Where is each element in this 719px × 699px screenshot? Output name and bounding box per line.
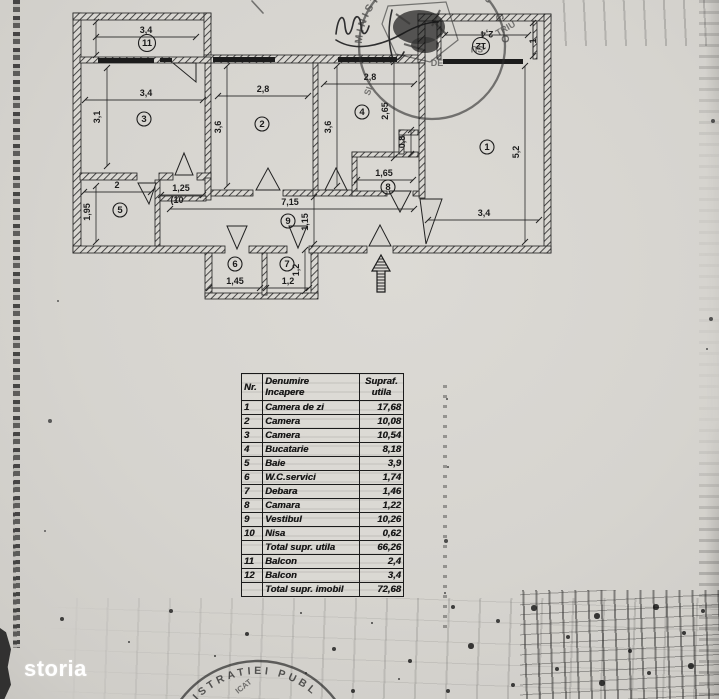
wall xyxy=(155,180,160,246)
wall xyxy=(313,63,318,193)
wall xyxy=(311,253,318,296)
wall xyxy=(413,191,419,196)
svg-text:8: 8 xyxy=(385,182,390,193)
cell-room-name: Camara xyxy=(263,499,360,513)
wall xyxy=(73,13,81,253)
door-swing-icon xyxy=(420,199,442,244)
dim-label: 1,65 xyxy=(375,168,393,178)
room-number: 6 xyxy=(228,257,242,271)
table-row: 8Camara1,22 xyxy=(242,499,404,513)
wall xyxy=(419,63,425,198)
dim-label: 3,1 xyxy=(92,111,102,124)
cell-area-value: 10,26 xyxy=(359,513,403,527)
dim-label: (10 xyxy=(170,195,183,205)
cell-room-name: Camera xyxy=(263,429,360,443)
wall xyxy=(249,246,287,253)
wall xyxy=(205,63,211,178)
table-row: 12Balcon3,4 xyxy=(242,569,404,583)
door-swing-icon xyxy=(138,183,156,204)
cell-nr xyxy=(242,583,263,597)
dim-label: 1,15 xyxy=(300,213,310,231)
dim-label: 3,4 xyxy=(140,25,153,35)
dim-label: 1,2 xyxy=(291,264,301,277)
wall xyxy=(211,190,253,196)
door-swing-icon xyxy=(173,63,196,82)
svg-text:1: 1 xyxy=(484,142,490,153)
svg-text:6: 6 xyxy=(232,259,237,270)
dim-label: 1,95 xyxy=(82,203,92,221)
table-row: 4Bucatarie8,18 xyxy=(242,443,404,457)
door-swing-icon xyxy=(175,153,193,175)
room-number: 9 xyxy=(281,214,295,228)
cell-room-name: Bucatarie xyxy=(263,443,360,457)
cell-room-name: Total supr. utila xyxy=(263,541,360,555)
entrance-arrow-icon xyxy=(372,255,390,292)
table-row: 5Baie3,9 xyxy=(242,457,404,471)
scanned-floorplan-document: 3,43,43,12,83,62,83,62,650,81,651,25(107… xyxy=(0,0,719,699)
room-area-table-container: Nr. DenumireIncapere Supraf.utila 1Camer… xyxy=(241,373,404,597)
cell-area-value: 1,74 xyxy=(359,471,403,485)
cell-nr: 4 xyxy=(242,443,263,457)
cell-nr: 1 xyxy=(242,401,263,415)
wall xyxy=(313,190,352,196)
room-number: 5 xyxy=(113,203,127,217)
window-band xyxy=(98,58,154,63)
dim-label: 5,2 xyxy=(511,146,521,159)
window-band xyxy=(213,57,275,62)
dim-label: 0,8 xyxy=(397,136,407,149)
svg-text:3: 3 xyxy=(141,114,146,125)
door-swing-icon xyxy=(256,168,280,190)
cell-area-value: 1,22 xyxy=(359,499,403,513)
room-area-table: Nr. DenumireIncapere Supraf.utila 1Camer… xyxy=(241,373,404,597)
cell-room-name: Camera de zi xyxy=(263,401,360,415)
cell-nr: 2 xyxy=(242,415,263,429)
cell-nr xyxy=(242,541,263,555)
cell-nr: 9 xyxy=(242,513,263,527)
dim-label: 1 xyxy=(528,38,538,43)
cell-nr: 10 xyxy=(242,527,263,541)
cell-area-value: 10,54 xyxy=(359,429,403,443)
cell-area-value: 10,08 xyxy=(359,415,403,429)
dim-label: 7,15 xyxy=(281,197,299,207)
cell-area-value: 66,26 xyxy=(359,541,403,555)
stamp-bottom-inner-text: ICAT xyxy=(234,677,254,695)
table-row: Total supr. utila66,26 xyxy=(242,541,404,555)
wall xyxy=(352,191,387,196)
room-number: 3 xyxy=(137,112,151,126)
wall xyxy=(205,253,212,296)
dim-label: 3,6 xyxy=(213,121,223,134)
header-area: Supraf.utila xyxy=(359,374,403,401)
table-row: 7Debara1,46 xyxy=(242,485,404,499)
cell-room-name: Vestibul xyxy=(263,513,360,527)
cell-area-value: 2,4 xyxy=(359,555,403,569)
dim-label: 1,2 xyxy=(282,276,295,286)
wall xyxy=(73,246,225,253)
dim-label: 3,4 xyxy=(140,88,153,98)
cell-room-name: Balcon xyxy=(263,555,360,569)
cell-area-value: 8,18 xyxy=(359,443,403,457)
window-band xyxy=(160,58,172,62)
table-row: 11Balcon2,4 xyxy=(242,555,404,569)
table-row: 2Camera10,08 xyxy=(242,415,404,429)
cell-area-value: 3,9 xyxy=(359,457,403,471)
cell-nr: 8 xyxy=(242,499,263,513)
cell-room-name: Total supr. imobil xyxy=(263,583,360,597)
window-band xyxy=(338,57,397,62)
storia-watermark: storia xyxy=(24,656,87,682)
cell-room-name: Balcon xyxy=(263,569,360,583)
room-number: 2 xyxy=(255,117,269,131)
svg-text:7: 7 xyxy=(284,259,289,270)
cell-nr: 6 xyxy=(242,471,263,485)
stamp-fragment: SU xyxy=(471,44,484,54)
table-row: 1Camera de zi17,68 xyxy=(242,401,404,415)
cell-nr: 12 xyxy=(242,569,263,583)
cell-nr: 3 xyxy=(242,429,263,443)
walls xyxy=(73,13,551,299)
cell-nr: 11 xyxy=(242,555,263,569)
cell-area-value: 0,62 xyxy=(359,527,403,541)
wall xyxy=(262,253,267,295)
cell-room-name: Nisa xyxy=(263,527,360,541)
svg-text:9: 9 xyxy=(285,216,290,227)
wall xyxy=(309,246,367,253)
cell-room-name: Baie xyxy=(263,457,360,471)
round-stamp-bottom: INISTRATIEI PUBL ICAT xyxy=(162,661,354,699)
wall xyxy=(283,190,313,196)
cell-room-name: Debara xyxy=(263,485,360,499)
room-number: 1 xyxy=(480,140,494,154)
room-number: 8 xyxy=(381,180,395,194)
dim-label: 2,8 xyxy=(257,84,270,94)
wall xyxy=(159,173,173,180)
header-nr: Nr. xyxy=(242,374,263,401)
cell-room-name: Camera xyxy=(263,415,360,429)
svg-text:2: 2 xyxy=(259,119,264,130)
cell-area-value: 1,46 xyxy=(359,485,403,499)
table-row: 6W.C.servici1,74 xyxy=(242,471,404,485)
wall xyxy=(73,13,211,20)
svg-text:5: 5 xyxy=(117,205,123,216)
room-number: 4 xyxy=(355,105,369,119)
wall xyxy=(393,246,551,253)
door-swing-icon xyxy=(369,225,391,246)
table-header-row: Nr. DenumireIncapere Supraf.utila xyxy=(242,374,404,401)
cell-nr: 7 xyxy=(242,485,263,499)
wall xyxy=(544,14,551,253)
cell-room-name: W.C.servici xyxy=(263,471,360,485)
svg-text:11: 11 xyxy=(142,38,153,49)
table-row: 10Nisa0,62 xyxy=(242,527,404,541)
dim-label: 1,45 xyxy=(226,276,244,286)
dim-label: 3,4 xyxy=(478,208,491,218)
cell-area-value: 17,68 xyxy=(359,401,403,415)
table-row: 3Camera10,54 xyxy=(242,429,404,443)
svg-text:4: 4 xyxy=(359,107,365,118)
dim-label: 3,6 xyxy=(323,121,333,134)
dim-label: 2 xyxy=(114,180,119,190)
header-name: DenumireIncapere xyxy=(263,374,360,401)
wall xyxy=(205,293,318,299)
dim-label: 1,25 xyxy=(172,183,190,193)
cell-area-value: 72,68 xyxy=(359,583,403,597)
wall xyxy=(352,152,357,196)
cell-area-value: 3,4 xyxy=(359,569,403,583)
table-row: Total supr. imobil72,68 xyxy=(242,583,404,597)
door-swing-icon xyxy=(227,226,247,249)
table-row: 9Vestibul10,26 xyxy=(242,513,404,527)
wall xyxy=(80,173,137,180)
cell-nr: 5 xyxy=(242,457,263,471)
window-band xyxy=(443,59,523,64)
